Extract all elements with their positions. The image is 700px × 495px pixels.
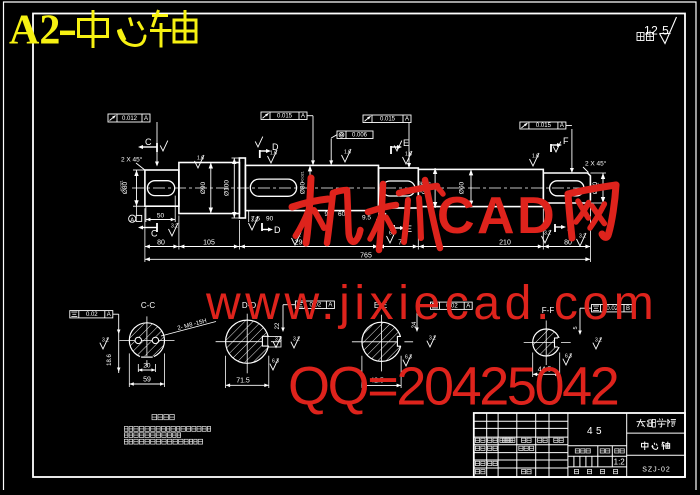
svg-text:3.2: 3.2	[102, 337, 109, 343]
svg-text:www.jixiecad.com: www.jixiecad.com	[205, 277, 658, 330]
svg-text:A: A	[130, 217, 134, 223]
svg-text:A: A	[405, 117, 409, 123]
svg-text:A: A	[107, 312, 111, 318]
svg-text:3.2: 3.2	[429, 335, 436, 341]
svg-text:7.5: 7.5	[251, 216, 260, 223]
svg-text:1.6: 1.6	[405, 152, 412, 158]
svg-text:A2: A2	[9, 7, 60, 53]
svg-text:3.2: 3.2	[171, 224, 178, 230]
svg-text:C-C: C-C	[141, 301, 155, 310]
svg-text:90: 90	[266, 216, 274, 223]
svg-text:2 X 45°: 2 X 45°	[585, 160, 607, 168]
svg-text:3.2: 3.2	[275, 336, 282, 342]
svg-text:765: 765	[360, 253, 372, 260]
svg-text:D: D	[274, 225, 281, 235]
svg-text:18.6: 18.6	[107, 354, 113, 366]
svg-text:QQ=20425042: QQ=20425042	[288, 357, 618, 417]
svg-text:F: F	[563, 136, 569, 146]
svg-text:105: 105	[203, 240, 215, 247]
svg-text:1.6: 1.6	[344, 150, 351, 156]
svg-text:60: 60	[338, 211, 346, 218]
svg-text:1:2: 1:2	[614, 458, 626, 467]
svg-text:1.6: 1.6	[270, 151, 277, 157]
svg-text:E: E	[403, 138, 409, 148]
svg-text:3.2: 3.2	[293, 336, 300, 342]
svg-text:6.3: 6.3	[272, 358, 279, 364]
svg-text:0.015: 0.015	[536, 123, 552, 129]
svg-text:20: 20	[143, 363, 151, 370]
svg-text:A: A	[301, 114, 305, 120]
svg-text:3.2: 3.2	[595, 337, 602, 343]
svg-text:9.5: 9.5	[362, 215, 371, 222]
svg-text:2 X 45°: 2 X 45°	[121, 156, 143, 164]
svg-text:C: C	[151, 229, 158, 239]
svg-text:12.5: 12.5	[644, 24, 669, 38]
svg-text:A: A	[560, 123, 564, 129]
svg-text:0.015: 0.015	[277, 114, 293, 120]
svg-text:59: 59	[143, 377, 151, 384]
svg-text:SZJ-02: SZJ-02	[642, 467, 671, 474]
svg-text:+0.021: +0.021	[120, 180, 124, 192]
svg-text:50: 50	[157, 213, 165, 220]
svg-text:0.012: 0.012	[122, 116, 138, 122]
svg-text:C: C	[145, 137, 152, 147]
svg-text:0.015: 0.015	[380, 117, 396, 123]
svg-text:71.5: 71.5	[236, 378, 250, 385]
svg-text:CAD: CAD	[437, 187, 557, 245]
svg-text:A: A	[144, 116, 148, 122]
svg-text:80: 80	[157, 240, 165, 247]
svg-text:45: 45	[587, 426, 605, 437]
svg-text:0.006: 0.006	[352, 133, 368, 139]
svg-text:1.6: 1.6	[197, 156, 204, 162]
svg-text:Ø100: Ø100	[223, 180, 230, 196]
svg-text:1.6: 1.6	[532, 154, 539, 160]
svg-text:0.02: 0.02	[86, 312, 98, 318]
svg-text:Ø90: Ø90	[200, 181, 207, 194]
svg-text:3.2: 3.2	[579, 234, 586, 240]
svg-text:+0.021: +0.021	[301, 171, 305, 183]
